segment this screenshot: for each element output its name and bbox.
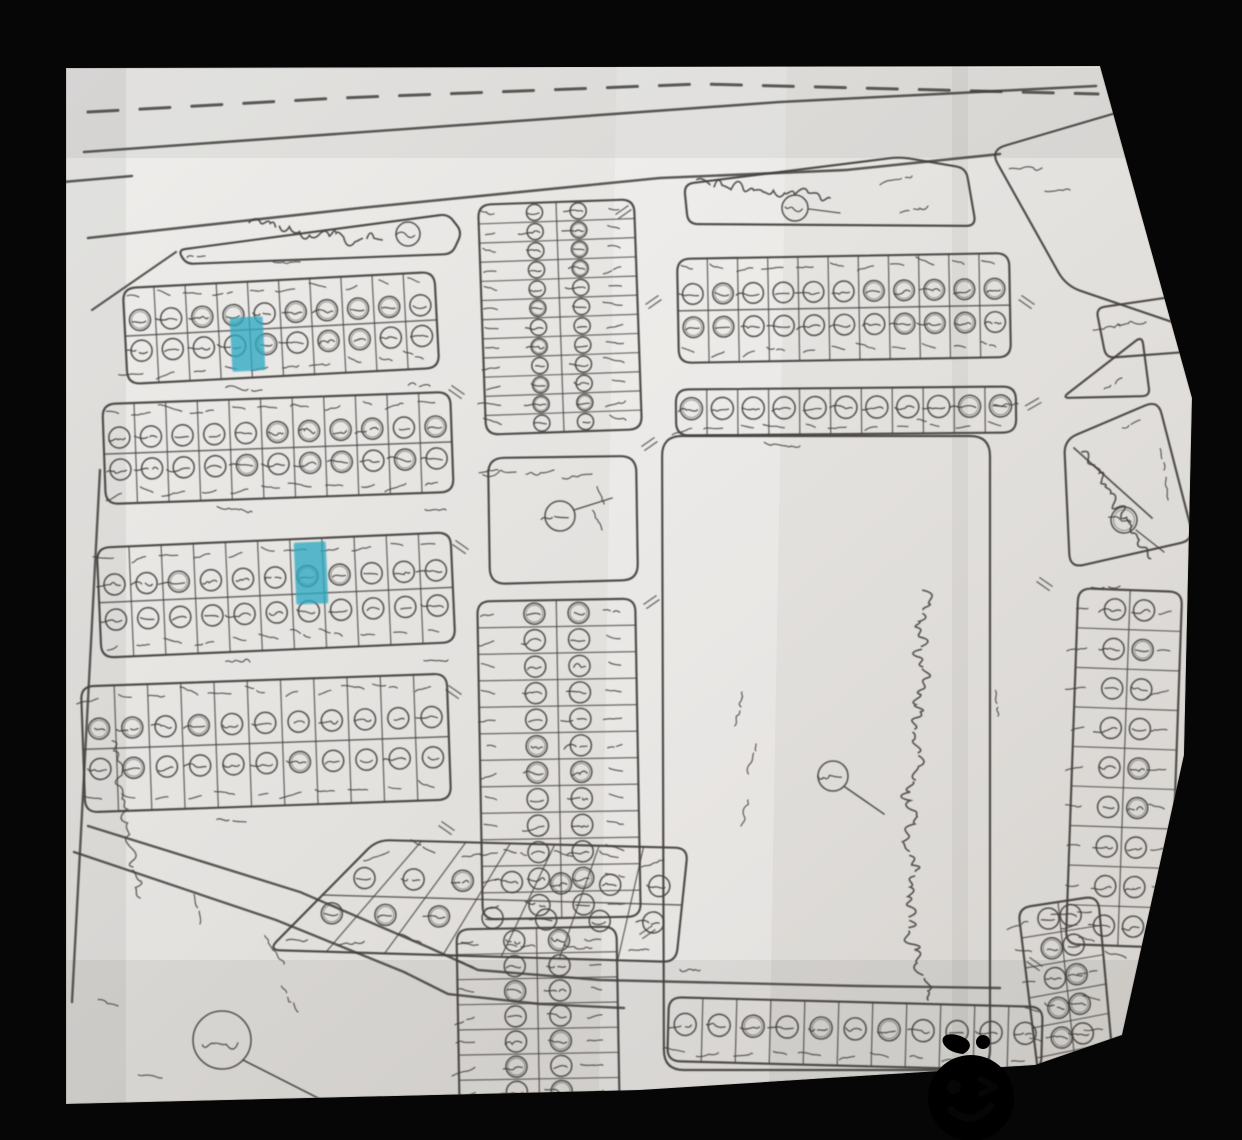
- plot-number-circle: [1067, 1052, 1096, 1074]
- highlight-1: [230, 316, 266, 372]
- cadastral-map-photo: [0, 0, 1242, 1140]
- fruit-head: [928, 1055, 1014, 1140]
- screenshot-root: [0, 0, 1242, 1140]
- fruit-leaf-dot-icon: [976, 1035, 990, 1049]
- highlight-2: [294, 541, 329, 604]
- fruit-eye-left: [947, 1080, 961, 1094]
- plot-number-circle: [317, 330, 340, 353]
- plot-number-circle: [1054, 1056, 1076, 1078]
